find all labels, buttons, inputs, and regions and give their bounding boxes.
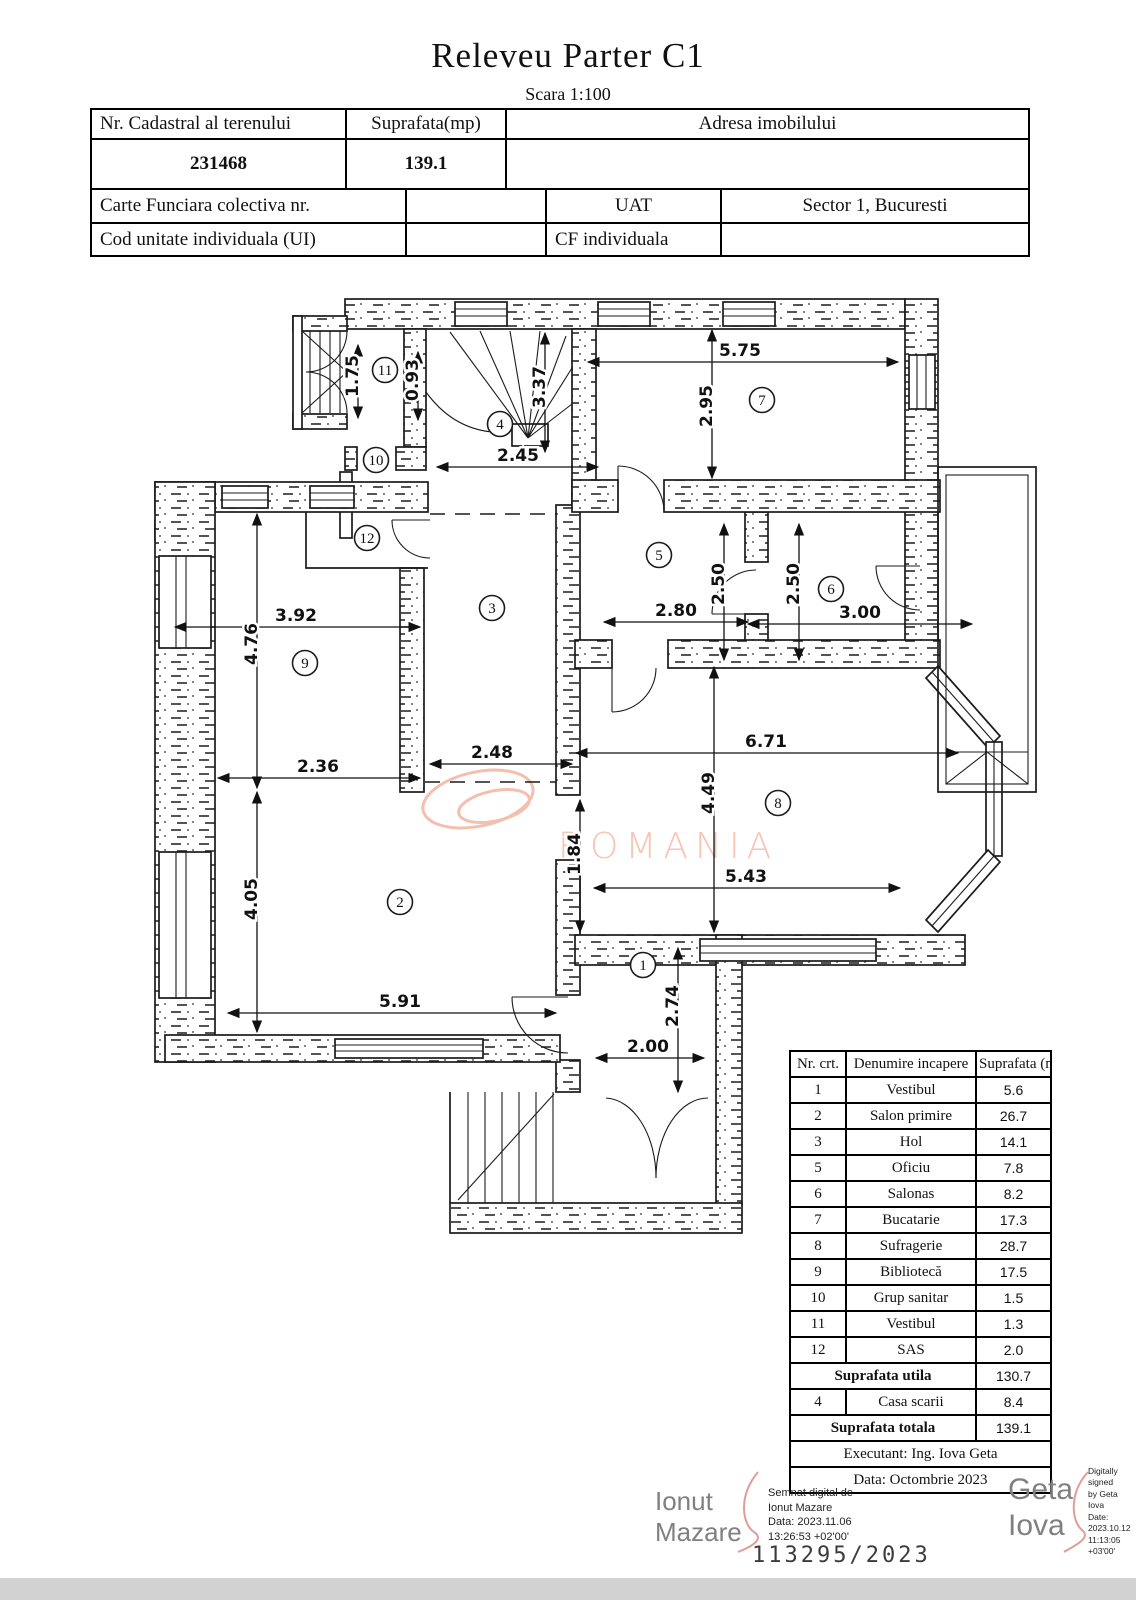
table-row: 7Bucatarie17.3 <box>790 1207 1051 1233</box>
romania-watermark: ROMANIA <box>418 761 779 867</box>
suprafata-utila-value: 130.7 <box>976 1363 1051 1389</box>
page-title: Releveu Parter C1 <box>0 36 1136 76</box>
suprafata-utila-label: Suprafata utila <box>790 1363 976 1389</box>
dim-label: 2.00 <box>627 1037 669 1057</box>
nr-cell: 6 <box>790 1181 846 1207</box>
nr-cell: 4 <box>790 1389 846 1415</box>
table-row: 11Vestibul1.3 <box>790 1311 1051 1337</box>
executant-cell: Executant: Ing. Iova Geta <box>790 1441 1051 1467</box>
dim-label: 2.50 <box>709 563 729 605</box>
nr-cell: 9 <box>790 1259 846 1285</box>
window <box>700 939 876 961</box>
window <box>159 556 211 648</box>
area-cell: 26.7 <box>976 1103 1051 1129</box>
right-detail-line: Date: <box>1088 1512 1136 1523</box>
table-row: 10Grup sanitar1.5 <box>790 1285 1051 1311</box>
dim-label: 2.48 <box>471 743 513 763</box>
name-cell: Sufragerie <box>846 1233 976 1259</box>
table-row: Nr. Cadastral al terenului Suprafata(mp)… <box>91 109 1029 139</box>
dim-label: 2.50 <box>784 563 804 605</box>
adresa-label: Adresa imobilului <box>506 109 1029 139</box>
room-number: 4 <box>488 412 513 437</box>
dim-label: 4.05 <box>242 878 262 920</box>
svg-text:2: 2 <box>396 895 404 911</box>
area-cell: 17.3 <box>976 1207 1051 1233</box>
room-number: 8 <box>766 791 791 816</box>
name-cell: Oficiu <box>846 1155 976 1181</box>
suprafata-totala-value: 139.1 <box>976 1415 1051 1441</box>
dim-label: 2.95 <box>697 385 717 427</box>
left-signature-details: Semnat digital de Ionut Mazare Data: 202… <box>768 1486 853 1544</box>
cod-unitate-value <box>406 223 546 256</box>
executant-row: Executant: Ing. Iova Geta <box>790 1441 1051 1467</box>
svg-text:5: 5 <box>655 548 663 564</box>
window <box>335 1039 483 1058</box>
col-header-nr: Nr. crt. <box>790 1051 846 1077</box>
header-table: Nr. Cadastral al terenului Suprafata(mp)… <box>90 108 1030 190</box>
table-row: 6Salonas8.2 <box>790 1181 1051 1207</box>
name-cell: Salonas <box>846 1181 976 1207</box>
right-detail-line: +03'00' <box>1088 1546 1136 1557</box>
right-detail-line: Digitally signed <box>1088 1466 1136 1489</box>
dashed-lines <box>425 514 556 782</box>
table-row: 12SAS2.0 <box>790 1337 1051 1363</box>
nr-cadastral-value: 231468 <box>91 139 346 189</box>
name-cell: Vestibul <box>846 1311 976 1337</box>
table-row: 231468 139.1 <box>91 139 1029 189</box>
dim-label: 2.80 <box>655 601 697 621</box>
area-cell: 1.5 <box>976 1285 1051 1311</box>
table-row: 8Sufragerie28.7 <box>790 1233 1051 1259</box>
window <box>598 302 650 326</box>
room-number: 1 <box>631 953 656 978</box>
suprafata-totala-label: Suprafata totala <box>790 1415 976 1441</box>
room-number: 3 <box>480 596 505 621</box>
name-cell: Bucatarie <box>846 1207 976 1233</box>
windows-layer <box>159 302 935 1058</box>
dim-label: 5.43 <box>725 867 767 887</box>
table-row: 1Vestibul5.6 <box>790 1077 1051 1103</box>
area-cell: 7.8 <box>976 1155 1051 1181</box>
room-number: 7 <box>750 388 775 413</box>
window <box>159 852 211 998</box>
header-table-lower: Carte Funciara colectiva nr. UAT Sector … <box>90 188 1030 257</box>
right-detail-line: 11:13:05 <box>1088 1535 1136 1546</box>
right-detail-line: by Geta Iova <box>1088 1489 1136 1512</box>
dim-label: 3.00 <box>839 603 881 623</box>
room-area-table: Nr. crt. Denumire incapere Suprafata (mp… <box>789 1050 1052 1494</box>
nr-cadastral-label: Nr. Cadastral al terenului <box>91 109 346 139</box>
door <box>618 466 664 512</box>
table-row: 4 Casa scarii 8.4 <box>790 1389 1051 1415</box>
suprafata-value: 139.1 <box>346 139 506 189</box>
dim-label: 0.93 <box>403 359 423 401</box>
dim-label: 5.91 <box>379 992 421 1012</box>
svg-text:11: 11 <box>378 363 392 379</box>
window <box>310 486 354 508</box>
dim-label: 1.75 <box>343 355 363 397</box>
dim-label: 3.37 <box>530 366 550 408</box>
nr-cell: 10 <box>790 1285 846 1311</box>
nr-cell: 7 <box>790 1207 846 1233</box>
left-detail-line: Semnat digital de <box>768 1486 853 1501</box>
dim-label: 2.45 <box>497 446 539 466</box>
suprafata-utila-row: Suprafata utila 130.7 <box>790 1363 1051 1389</box>
nr-cell: 8 <box>790 1233 846 1259</box>
table-row: 2Salon primire26.7 <box>790 1103 1051 1129</box>
cf-individuala-label: CF individuala <box>546 223 721 256</box>
nr-cell: 3 <box>790 1129 846 1155</box>
area-cell: 8.4 <box>976 1389 1051 1415</box>
window <box>909 355 935 409</box>
nr-cell: 5 <box>790 1155 846 1181</box>
table-row: Carte Funciara colectiva nr. UAT Sector … <box>91 189 1029 223</box>
svg-text:4: 4 <box>496 417 504 433</box>
right-signature-details: Digitally signed by Geta Iova Date: 2023… <box>1088 1466 1136 1558</box>
room-number: 10 <box>364 448 389 473</box>
svg-text:8: 8 <box>774 796 782 812</box>
suprafata-label: Suprafata(mp) <box>346 109 506 139</box>
dim-label: 1.84 <box>565 833 585 875</box>
svg-text:6: 6 <box>827 582 835 598</box>
adresa-value <box>506 139 1029 189</box>
area-cell: 5.6 <box>976 1077 1051 1103</box>
area-cell: 8.2 <box>976 1181 1051 1207</box>
table-header-row: Nr. crt. Denumire incapere Suprafata (mp… <box>790 1051 1051 1077</box>
carte-funciara-label: Carte Funciara colectiva nr. <box>91 189 406 223</box>
svg-text:12: 12 <box>360 531 375 547</box>
nr-cell: 11 <box>790 1311 846 1337</box>
window <box>222 486 268 508</box>
right-detail-line: 2023.10.12 <box>1088 1523 1136 1534</box>
svg-text:10: 10 <box>369 453 384 469</box>
name-cell: Hol <box>846 1129 976 1155</box>
col-header-area: Suprafata (mp) <box>976 1051 1051 1077</box>
table-row: 9Bibliotecă17.5 <box>790 1259 1051 1285</box>
left-detail-line: Data: 2023.11.06 <box>768 1515 853 1530</box>
scale-subtitle: Scara 1:100 <box>0 84 1136 105</box>
svg-text:9: 9 <box>301 656 309 672</box>
room-number: 2 <box>388 890 413 915</box>
entrance-double-door <box>606 1098 708 1178</box>
room-number: 6 <box>819 577 844 602</box>
cod-unitate-label: Cod unitate individuala (UI) <box>91 223 406 256</box>
suprafata-totala-row: Suprafata totala 139.1 <box>790 1415 1051 1441</box>
uat-value: Sector 1, Bucuresti <box>721 189 1029 223</box>
nr-cell: 2 <box>790 1103 846 1129</box>
watermark-text: ROMANIA <box>558 826 778 867</box>
nr-cell: 1 <box>790 1077 846 1103</box>
dim-label: 4.76 <box>242 623 262 665</box>
door <box>306 331 347 413</box>
dim-label: 5.75 <box>719 341 761 361</box>
svg-text:3: 3 <box>488 601 496 617</box>
carte-funciara-value <box>406 189 546 223</box>
nr-cell: 12 <box>790 1337 846 1363</box>
door <box>612 668 656 712</box>
room-number: 12 <box>355 526 380 551</box>
room-number: 5 <box>647 543 672 568</box>
name-cell: SAS <box>846 1337 976 1363</box>
room-number: 11 <box>373 358 398 383</box>
name-cell: Salon primire <box>846 1103 976 1129</box>
name-cell: Casa scarii <box>846 1389 976 1415</box>
case-number: 113295/2023 <box>752 1543 931 1568</box>
name-cell: Bibliotecă <box>846 1259 976 1285</box>
door <box>392 520 430 558</box>
dim-label: 6.71 <box>745 732 787 752</box>
svg-text:7: 7 <box>758 393 766 409</box>
dim-label: 3.92 <box>275 606 317 626</box>
area-cell: 28.7 <box>976 1233 1051 1259</box>
left-detail-line: Ionut Mazare <box>768 1501 853 1516</box>
scan-edge-bar <box>0 1578 1136 1600</box>
area-cell: 14.1 <box>976 1129 1051 1155</box>
window <box>455 302 507 326</box>
dim-label: 4.49 <box>699 772 719 814</box>
dim-label: 2.74 <box>663 985 683 1027</box>
svg-text:1: 1 <box>639 958 647 974</box>
area-cell: 1.3 <box>976 1311 1051 1337</box>
area-cell: 17.5 <box>976 1259 1051 1285</box>
area-cell: 2.0 <box>976 1337 1051 1363</box>
cf-individuala-value <box>721 223 1029 256</box>
name-cell: Vestibul <box>846 1077 976 1103</box>
window <box>723 302 775 326</box>
entry-stair <box>450 1092 554 1203</box>
dim-label: 2.36 <box>297 757 339 777</box>
left-detail-line: 13:26:53 +02'00' <box>768 1530 853 1545</box>
room-number: 9 <box>293 651 318 676</box>
col-header-name: Denumire incapere <box>846 1051 976 1077</box>
uat-label: UAT <box>546 189 721 223</box>
name-cell: Grup sanitar <box>846 1285 976 1311</box>
table-row: 3Hol14.1 <box>790 1129 1051 1155</box>
table-row: 5Oficiu7.8 <box>790 1155 1051 1181</box>
table-row: Cod unitate individuala (UI) CF individu… <box>91 223 1029 256</box>
